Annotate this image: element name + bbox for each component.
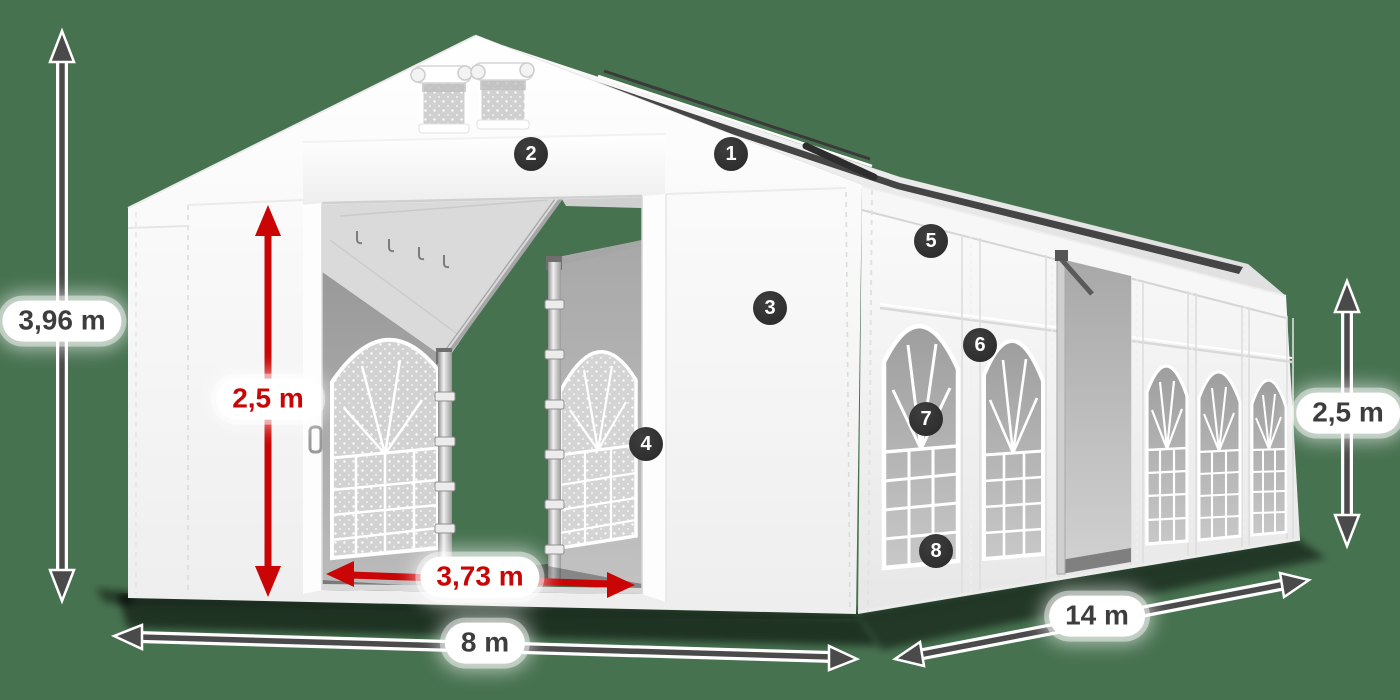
callout-3-front-wall[interactable]: 3 [753, 291, 787, 325]
callout-5-side-upper[interactable]: 5 [914, 224, 948, 258]
front-door-interior [322, 195, 642, 596]
interior-right-window [560, 352, 636, 548]
callout-2-gable[interactable]: 2 [514, 137, 548, 171]
gable-vent-right [471, 63, 534, 129]
callout-8-side-skirt[interactable]: 8 [919, 534, 953, 568]
dimension-label-door-width: 3,73 m [420, 557, 539, 598]
dimension-label-door-height: 2,5 m [216, 379, 320, 420]
callout-6-side-seam[interactable]: 6 [963, 328, 997, 362]
door-column-right [642, 194, 666, 602]
dimension-label-length: 14 m [1049, 596, 1145, 637]
callout-7-side-window[interactable]: 7 [909, 402, 943, 436]
side-window-2 [984, 341, 1043, 559]
side-window-1 [884, 326, 958, 568]
callout-1-roof[interactable]: 1 [714, 137, 748, 171]
callout-4-door-column[interactable]: 4 [629, 427, 663, 461]
side-window-5 [1252, 380, 1286, 535]
dimension-label-total-height: 3,96 m [2, 301, 121, 342]
interior-left-window [332, 340, 438, 558]
side-door-opening [1055, 250, 1131, 574]
tent-dimension-diagram: 3,96 m 2,5 m 3,73 m 8 m 14 m 2,5 m 1 2 3… [0, 0, 1400, 700]
door-header-beam [303, 134, 665, 205]
tent-illustration [0, 0, 1400, 700]
side-window-4 [1199, 372, 1240, 540]
dimension-label-side-height: 2,5 m [1296, 393, 1400, 434]
side-window-3 [1147, 366, 1187, 544]
dimension-label-width: 8 m [445, 623, 525, 664]
